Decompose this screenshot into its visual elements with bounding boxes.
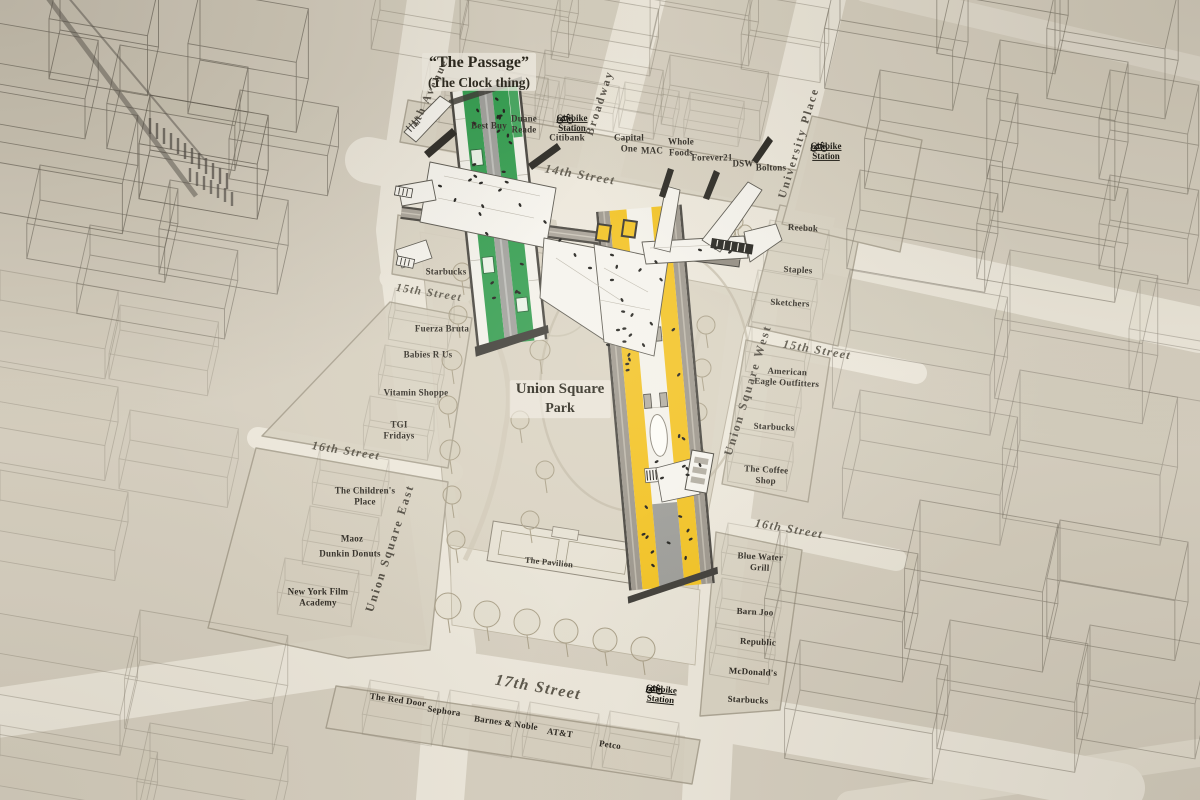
street-label: 14th Street — [544, 161, 617, 188]
citibike-station-label: CitibikeStation — [645, 682, 678, 705]
business-label: DSW — [732, 159, 753, 170]
bike-icon — [645, 682, 663, 695]
bike-icon — [556, 113, 573, 124]
business-label: Citibank — [549, 133, 585, 144]
business-label: Republic — [740, 636, 777, 648]
avenue-label: Union Square West — [721, 323, 775, 458]
map-labels: “The Passage” (The Clock thing) Union Sq… — [0, 0, 1200, 800]
business-label: Forever21 — [691, 153, 732, 164]
business-label: The Red Door — [369, 691, 427, 709]
business-label: Petco — [598, 738, 621, 752]
business-label: Dunkin Donuts — [319, 549, 380, 560]
business-label: Starbucks — [426, 267, 467, 278]
union-square-map: “The Passage” (The Clock thing) Union Sq… — [0, 0, 1200, 800]
street-label: 16th Street — [754, 516, 825, 543]
business-label: Staples — [783, 264, 812, 276]
business-label: Reebok — [788, 222, 819, 234]
business-label: Vitamin Shoppe — [384, 388, 449, 399]
citibike-station-label: CitibikeStation — [556, 113, 587, 133]
business-label: MAC — [641, 146, 663, 157]
business-label: The CoffeeShop — [743, 463, 788, 487]
bike-icon — [810, 141, 827, 152]
business-label: Barnes & Noble — [473, 713, 538, 732]
street-label: 17th Street — [494, 672, 583, 705]
business-label: Sketchers — [770, 297, 810, 310]
avenue-label: Broadway — [584, 69, 616, 137]
business-label: Fuerza Bruta — [415, 324, 469, 335]
street-label: 15th Street — [782, 337, 853, 364]
business-label: New York FilmAcademy — [288, 586, 349, 607]
business-label: Maoz — [341, 534, 363, 545]
business-label: AmericanEagle Outfitters — [754, 365, 820, 390]
business-label: Babies R Us — [404, 350, 453, 361]
business-label: Boltons — [756, 163, 786, 174]
park-label-line1: Union Square — [516, 380, 605, 400]
street-label: 15th Street — [395, 282, 463, 304]
business-label: Starbucks — [727, 694, 768, 707]
business-label: AT&T — [546, 726, 573, 740]
business-label: WholeFoods — [668, 136, 694, 157]
business-label: Blue WaterGrill — [737, 550, 784, 574]
park-label-line2: Park — [516, 400, 605, 418]
business-label: Barn Joo — [736, 606, 773, 619]
street-label: 16th Street — [311, 438, 382, 464]
pavilion-label: The Pavilion — [524, 554, 573, 569]
business-label: Best Buy — [471, 121, 507, 132]
business-label: Sephora — [427, 703, 462, 718]
business-label: Starbucks — [753, 421, 794, 434]
business-label: McDonald's — [728, 665, 777, 678]
business-label: CapitalOne — [614, 132, 644, 153]
park-label: Union Square Park — [510, 380, 611, 418]
citibike-station-label: CitibikeStation — [810, 141, 841, 161]
business-label: DuaneReade — [511, 113, 537, 134]
business-label: TGIFridays — [384, 419, 415, 440]
business-label: The Children'sPlace — [335, 485, 395, 506]
